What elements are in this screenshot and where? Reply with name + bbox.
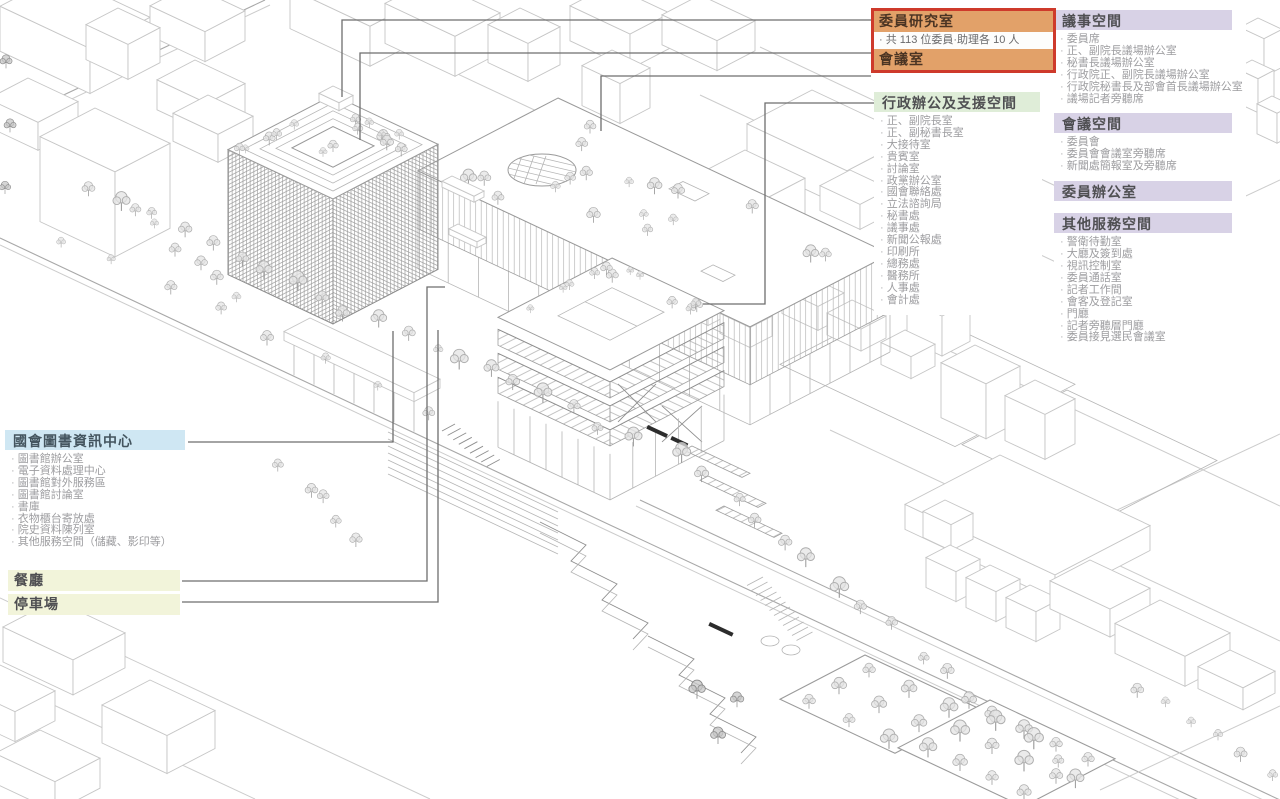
highlight-box: 委員研究室 共 113 位委員·助理各 10 人 會議室 — [871, 8, 1056, 73]
legend-item: 大接待室 — [880, 140, 1042, 152]
legend-section-items: 警衛待勤室 大廳及簽到處 視訊控制室 委員通話室 記者工作間 會客及登記室 門廳 — [1054, 233, 1246, 348]
legend-section-title: 其他服務空間 — [1054, 213, 1232, 233]
legend-section-title: 會議空間 — [1054, 113, 1232, 133]
legend-item: 委員接見選民會議室 — [1060, 332, 1246, 344]
highlight-note: 共 113 位委員·助理各 10 人 — [874, 32, 1053, 49]
legend-right-column: 議事空間 委員席 正、副院長議場辦公室 秘書長議場辦公室 行政院正、副院長議場辦… — [1054, 10, 1246, 356]
legend-library-column: 國會圖書資訊中心 圖書館辦公室 電子資料處理中心 圖書館對外服務區 圖書館討論室… — [5, 430, 187, 553]
legend-item: 醫務所 — [880, 271, 1042, 283]
legend-item: 行政院正、副院長議場辦公室 — [1060, 70, 1246, 82]
legend-item: 討論室 — [880, 164, 1042, 176]
legend-section: 其他服務空間 警衛待勤室 大廳及簽到處 視訊控制室 委員通話室 記者工作間 會客… — [1054, 213, 1246, 348]
legend-section: 會議空間 委員會 委員會會議室旁聽席 新聞處簡報室及旁聽席 — [1054, 113, 1246, 177]
legend-item: 書庫 — [11, 502, 187, 514]
legend-section: 委員辦公室 — [1054, 181, 1246, 209]
site-diagram-page: 委員研究室 共 113 位委員·助理各 10 人 會議室 議事空間 委員席 正、… — [0, 0, 1280, 799]
legend-item: 新聞處簡報室及旁聽席 — [1060, 161, 1246, 173]
legend-item: 委員通話室 — [1060, 273, 1246, 285]
legend-section-title: 議事空間 — [1054, 10, 1232, 30]
legend-item: 貴賓室 — [880, 152, 1042, 164]
legend-admin-column: 行政辦公及支援空間 正、副院長室 正、副秘書長室 大接待室 貴賓室 討論室 政黨… — [874, 92, 1042, 315]
restaurant-label: 餐廳 — [8, 570, 180, 591]
legend-item: 人事處 — [880, 283, 1042, 295]
admin-column-title: 行政辦公及支援空間 — [874, 92, 1040, 112]
legend-item: 圖書館討論室 — [11, 490, 187, 502]
legend-section-items: 委員席 正、副院長議場辦公室 秘書長議場辦公室 行政院正、副院長議場辦公室 行政… — [1054, 30, 1246, 109]
legend-section-items — [1054, 201, 1246, 209]
legend-item: 圖書館對外服務區 — [11, 478, 187, 490]
legend-item: 議場記者旁聽席 — [1060, 94, 1246, 106]
legend-item: 記者工作間 — [1060, 285, 1246, 297]
legend-section: 議事空間 委員席 正、副院長議場辦公室 秘書長議場辦公室 行政院正、副院長議場辦… — [1054, 10, 1246, 109]
legend-item: 會客及登記室 — [1060, 297, 1246, 309]
legend-section-title: 委員辦公室 — [1054, 181, 1232, 201]
parking-label: 停車場 — [8, 594, 180, 615]
admin-column-items: 正、副院長室 正、副秘書長室 大接待室 貴賓室 討論室 政黨辦公室 國會聯絡處 … — [874, 112, 1042, 311]
legend-item: 秘書長議場辦公室 — [1060, 58, 1246, 70]
legend-item: 行政院秘書長及部會首長議場辦公室 — [1060, 82, 1246, 94]
legend-item: 總務處 — [880, 259, 1042, 271]
legend-item: 會計處 — [880, 295, 1042, 307]
highlight-header-research: 委員研究室 — [874, 11, 1053, 32]
legend-item: 其他服務空間（儲藏、影印等） — [11, 537, 187, 549]
library-column-items: 圖書館辦公室 電子資料處理中心 圖書館對外服務區 圖書館討論室 書庫 衣物櫃台寄… — [5, 450, 187, 553]
library-column-title: 國會圖書資訊中心 — [5, 430, 185, 450]
legend-item: 門廳 — [1060, 309, 1246, 321]
legend-section-items: 委員會 委員會會議室旁聽席 新聞處簡報室及旁聽席 — [1054, 133, 1246, 177]
highlight-header-meeting: 會議室 — [874, 49, 1053, 70]
